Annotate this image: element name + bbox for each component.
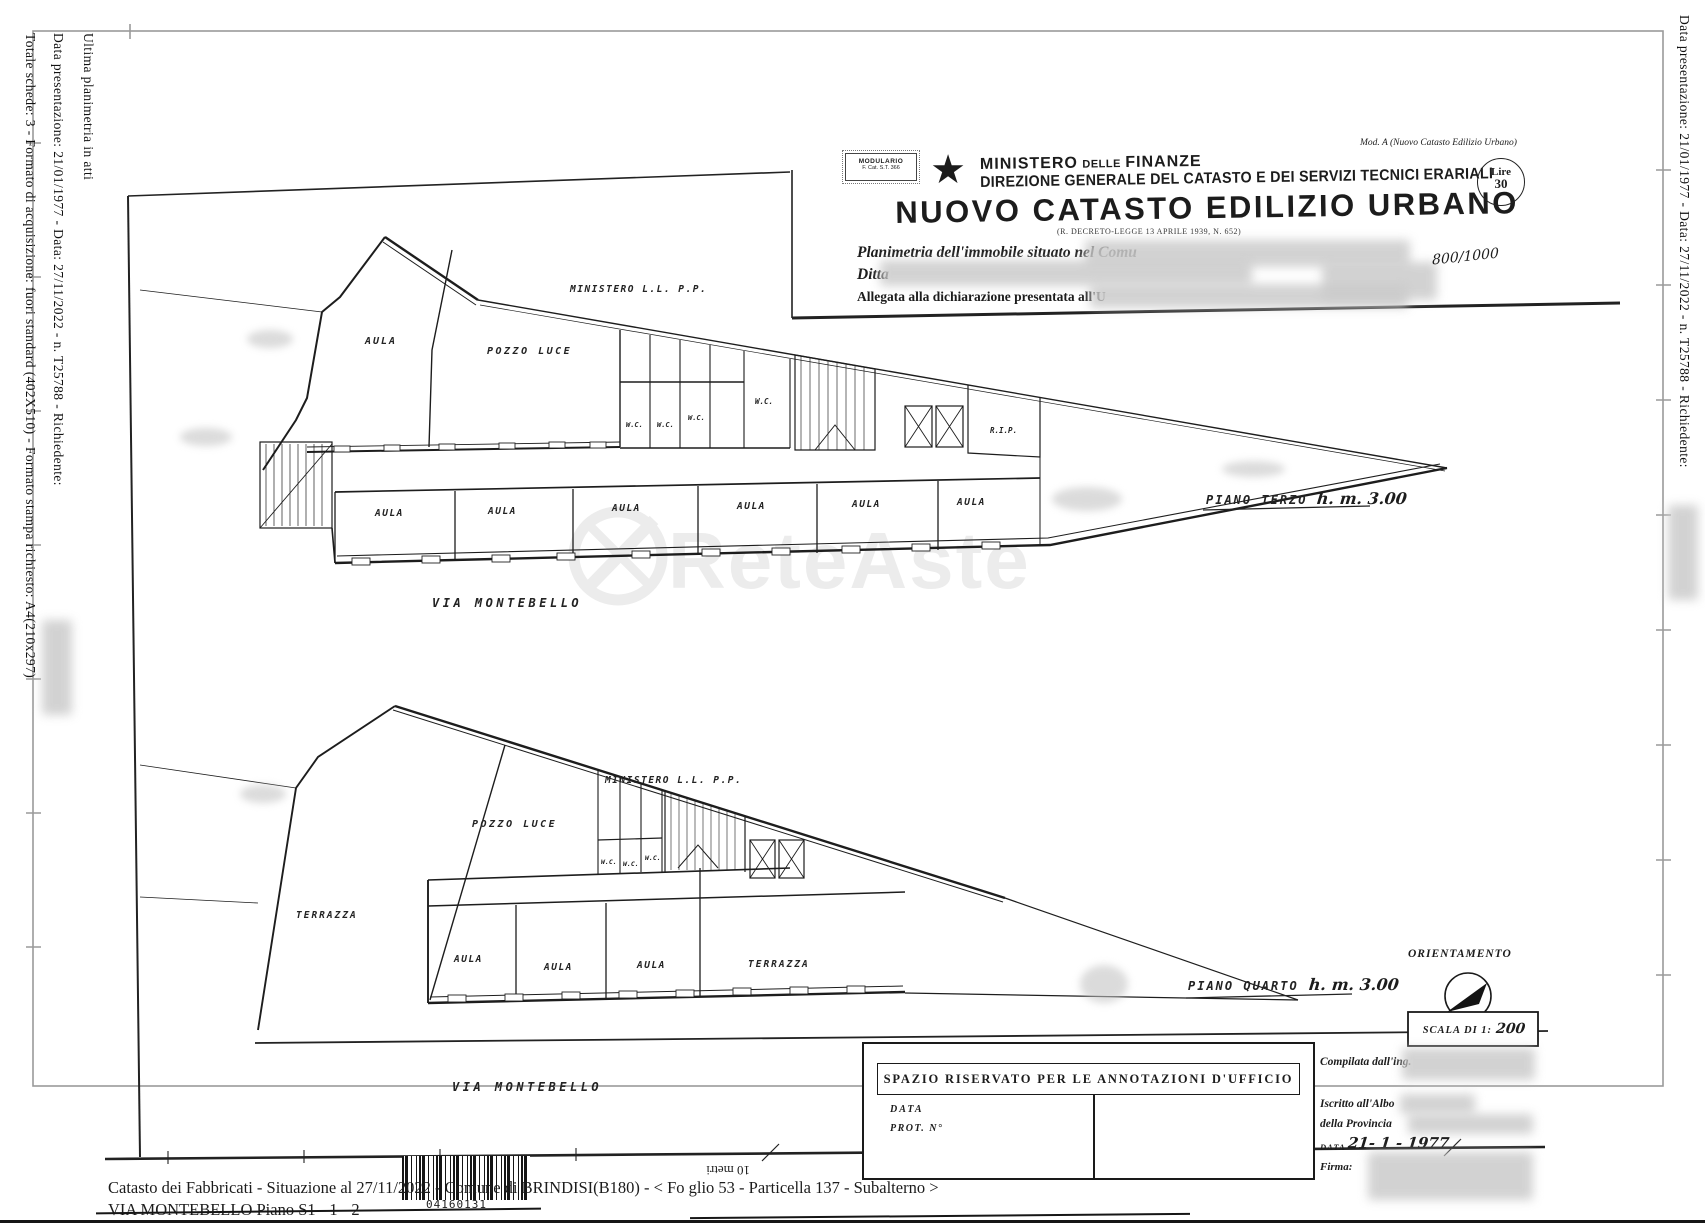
- plan2-via-montebello-label: VIA MONTEBELLO: [452, 1080, 602, 1094]
- plan2-terrazza-left-label: TERRAZZA: [296, 910, 358, 921]
- plan1-pozzo-luce-label: POZZO LUCE: [487, 346, 572, 357]
- plan1-aula6-label: AULA: [956, 497, 986, 508]
- redaction-firma: [1368, 1152, 1533, 1200]
- redaction-compilata: [1402, 1048, 1535, 1080]
- plan1-wc2-label: W.C.: [657, 421, 674, 429]
- margin-left-line1: Ultima planimetria in atti: [80, 33, 96, 180]
- header-decreto: (R. DECRETO-LEGGE 13 APRILE 1939, N. 652…: [1057, 227, 1241, 236]
- office-data-value: 21- 1 - 1977: [1347, 1134, 1450, 1152]
- plan1-aula2-label: AULA: [487, 506, 517, 517]
- plan1-wc1-label: W.C.: [626, 421, 643, 429]
- plan2-terrazza-right-label: TERRAZZA: [748, 959, 810, 970]
- ministero-word3: FINANZE: [1125, 153, 1202, 171]
- plan2-windows: [448, 986, 865, 1002]
- plan2-aula1-label: AULA: [453, 954, 483, 965]
- redaction-left-margin: [42, 620, 72, 715]
- plan2-piano-title: PIANO QUARTO h. m. 3.00: [1188, 975, 1399, 995]
- margin-left-line2: Data presentazione: 21/01/1977 - Data: 2…: [50, 33, 66, 486]
- plan1-aula-label: AULA: [364, 336, 397, 347]
- plan2-pozzo-luce-label: POZZO LUCE: [472, 819, 557, 830]
- plan1-aula3-label: AULA: [611, 503, 641, 514]
- annotations-title-cell: SPAZIO RISERVATO PER LE ANNOTAZIONI D'UF…: [877, 1063, 1300, 1095]
- smudge-6: [1080, 965, 1128, 1003]
- plan1-aula5-label: AULA: [851, 499, 881, 510]
- plan1-piano-height: h. m. 3.00: [1316, 489, 1408, 508]
- plan2-piano-quarto: MINISTERO L.L. P.P. POZZO LUCE TERRAZZA …: [140, 706, 1352, 1094]
- plan2-wc1-label: W.C.: [601, 858, 617, 866]
- compass-needle-icon: [1447, 983, 1487, 1012]
- annotations-divider: [1093, 1094, 1095, 1178]
- lire-stamp: Lire 30: [1477, 158, 1525, 206]
- margin-left-line3: Totale schede: 3 - Formato di acquisizio…: [22, 33, 38, 678]
- plan1-rip-label: R.I.P.: [990, 426, 1017, 435]
- modulario-line2: F. Cat. S.T. 366: [846, 165, 916, 171]
- scala-label: SCALA DI 1: 200: [1414, 1020, 1534, 1038]
- plan2-wc3-label: W.C.: [645, 854, 661, 862]
- modulario-line1: MODULARIO: [846, 158, 916, 165]
- scala-prefix: SCALA DI 1:: [1423, 1025, 1492, 1036]
- office-compilata: Compilata dall'ing.: [1320, 1056, 1411, 1068]
- office-della: della Provincia: [1320, 1118, 1392, 1130]
- watermark-logo: ReteAste: [574, 512, 1031, 605]
- plan1-ministero-label: MINISTERO L.L. P.P.: [569, 284, 707, 295]
- plan2-aula2-label: AULA: [543, 962, 573, 973]
- ministero-word1: MINISTERO: [980, 155, 1078, 173]
- watermark-text: ReteAste: [668, 516, 1031, 605]
- plan2-piano-name: PIANO QUARTO: [1188, 979, 1299, 993]
- header-allegata: Allegata alla dichiarazione presentata a…: [857, 289, 1106, 305]
- header-mod-a: Mod. A (Nuovo Catasto Edilizio Urbano): [1360, 138, 1517, 148]
- plan1-wc3-label: W.C.: [688, 414, 705, 422]
- office-iscritto: Iscritto all'Albo: [1320, 1098, 1394, 1110]
- state-emblem-icon: ★: [927, 144, 969, 200]
- sheet-border: [105, 170, 1620, 1164]
- smudge-5: [240, 785, 286, 803]
- scala-value: 200: [1495, 1021, 1526, 1037]
- plan2-aula3-label: AULA: [636, 960, 666, 971]
- plan1-aula1-label: AULA: [374, 508, 404, 519]
- annotations-prot-label: PROT. N°: [890, 1123, 943, 1134]
- redaction-ditta: [880, 260, 1252, 286]
- orientamento-label: ORIENTAMENTO: [1408, 948, 1512, 960]
- office-firma-label: Firma:: [1320, 1161, 1352, 1173]
- scalebar-label: 10 metri: [698, 1162, 750, 1178]
- plan2-piano-height: h. m. 3.00: [1308, 975, 1400, 994]
- annotations-title: SPAZIO RISERVATO PER LE ANNOTAZIONI D'UF…: [884, 1072, 1294, 1087]
- plan1-piano-title: PIANO TERZO h. m. 3.00: [1206, 489, 1407, 509]
- plan1-aula4-label: AULA: [736, 501, 766, 512]
- annotations-box: SPAZIO RISERVATO PER LE ANNOTAZIONI D'UF…: [862, 1042, 1315, 1180]
- plan2-wc2-label: W.C.: [623, 860, 639, 868]
- plan1-via-montebello-label: VIA MONTEBELLO: [432, 596, 582, 610]
- smudge-3: [1052, 487, 1122, 511]
- scanned-cadastral-document: ReteAste: [0, 0, 1705, 1229]
- redaction-allegata: [1090, 284, 1408, 308]
- annotations-data-label: DATA: [890, 1104, 924, 1115]
- plan1-piano-name: PIANO TERZO: [1206, 493, 1307, 507]
- plan1-wc4-label: W.C.: [755, 397, 773, 406]
- plan2-ministero-label: MINISTERO L.L. P.P.: [604, 775, 742, 786]
- redaction-della: [1408, 1114, 1533, 1134]
- smudge-4: [1222, 461, 1285, 477]
- plan-drawing: ReteAste: [0, 0, 1705, 1229]
- redaction-iscritto: [1400, 1094, 1475, 1114]
- smudge-1: [247, 330, 293, 348]
- redaction-right-margin: [1668, 505, 1698, 600]
- modulario-stamp: MODULARIO F. Cat. S.T. 366: [845, 153, 917, 181]
- smudge-2: [180, 428, 232, 446]
- margin-right-line1: Data presentazione: 21/01/1977 - Data: 2…: [1676, 15, 1692, 468]
- footer-line1: Catasto dei Fabbricati - Situazione al 2…: [108, 1178, 939, 1198]
- office-data-label: DATA: [1320, 1142, 1346, 1152]
- lire-value: 30: [1478, 178, 1524, 189]
- ministero-word2: DELLE: [1082, 158, 1121, 171]
- footer-bottom-rule: [0, 1220, 1705, 1223]
